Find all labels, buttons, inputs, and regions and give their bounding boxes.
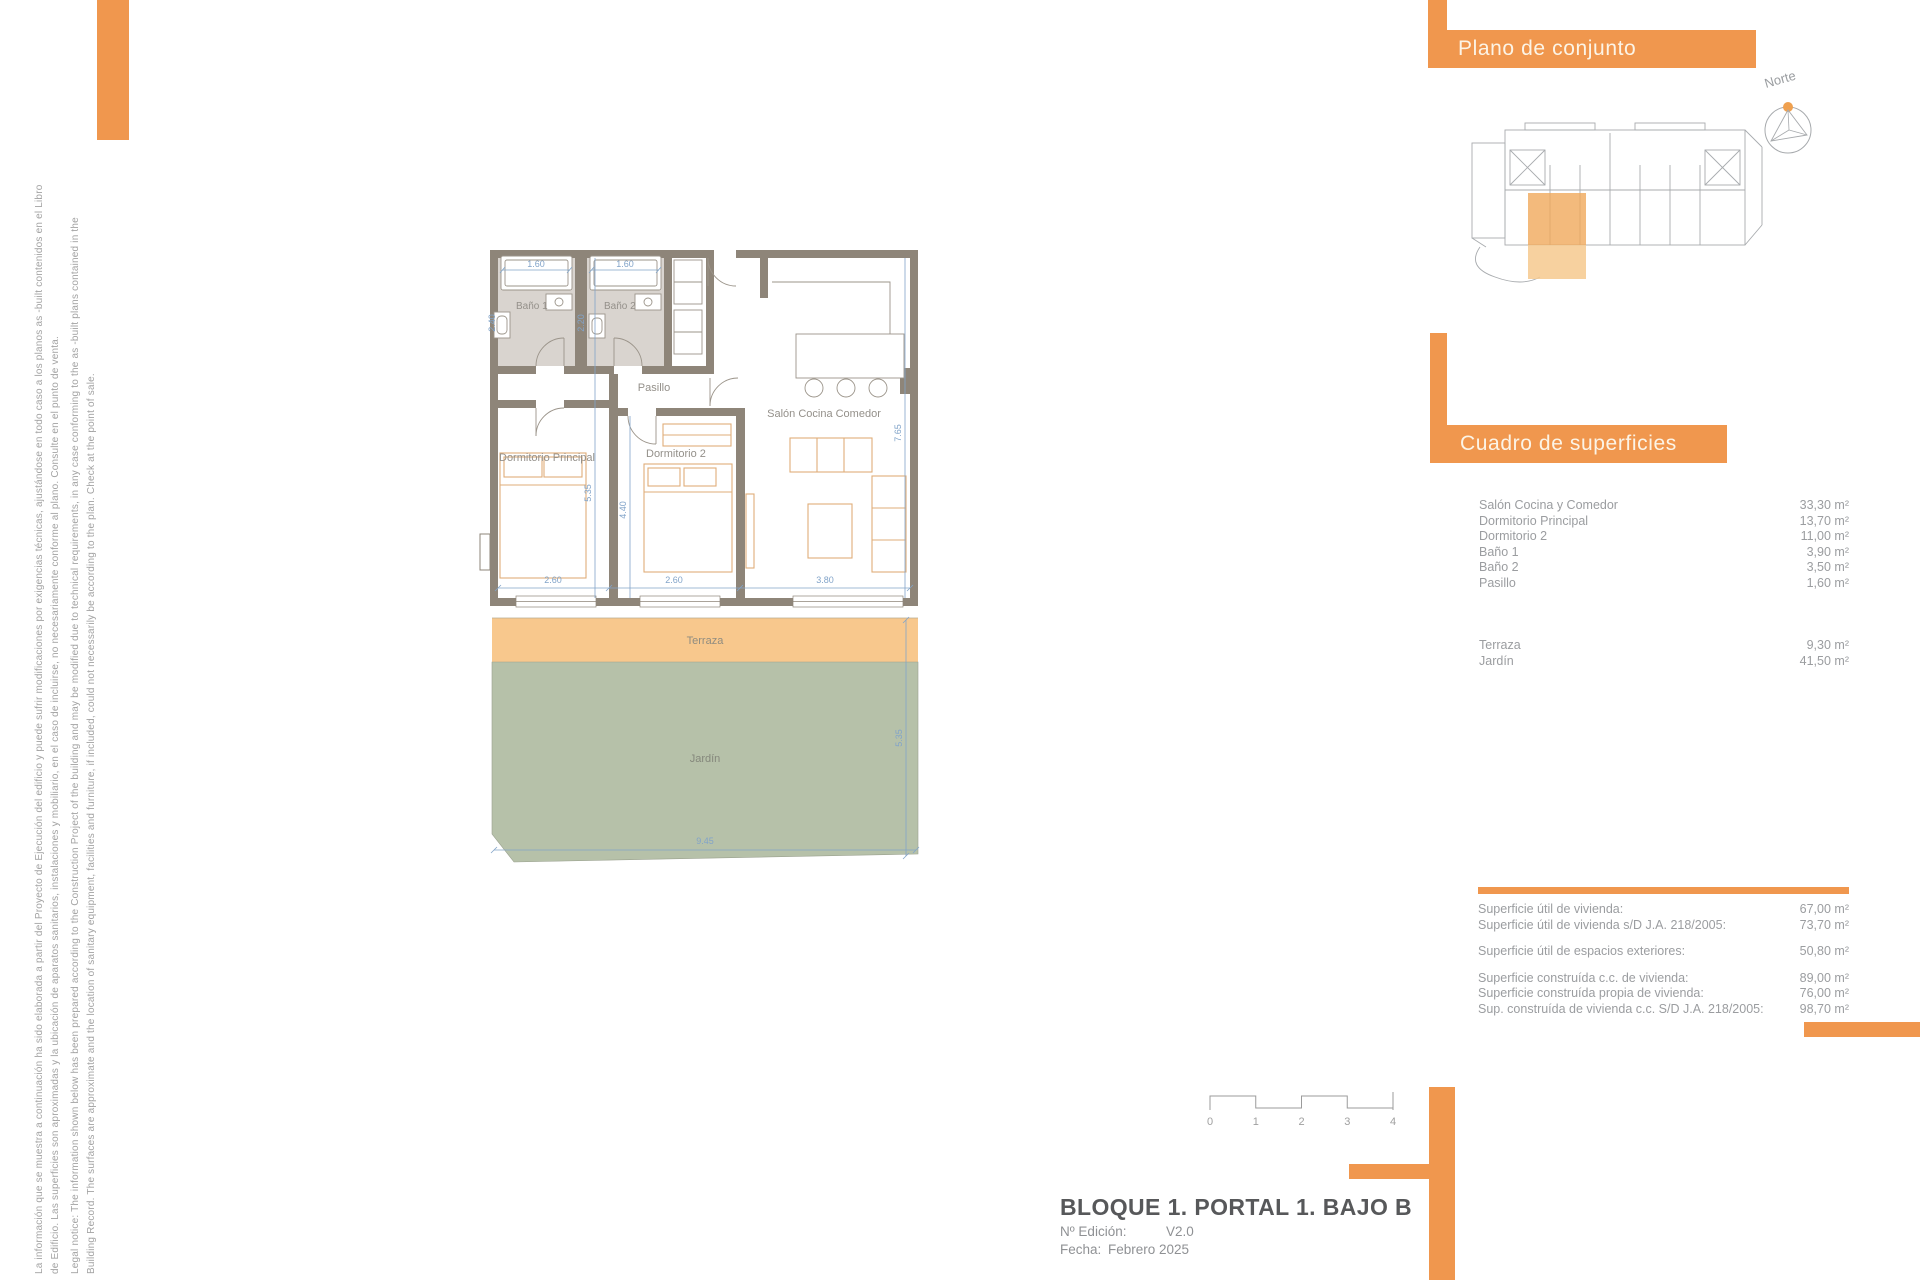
edition-row: Nº Edición: V2.0 — [1060, 1224, 1412, 1239]
summary-row: Superficie útil de vivienda s/D J.A. 218… — [1478, 918, 1849, 934]
legal-text-en-line2: Building Record. The surfaces are approx… — [86, 8, 102, 1274]
summary-row: Superficie construída c.c. de vivienda:8… — [1478, 971, 1849, 987]
dim-dp-height: 5.35 — [583, 484, 593, 502]
summary-row: Superficie útil de vivienda:67,00 m² — [1478, 902, 1849, 918]
site-plan-title: Plano de conjunto — [1458, 37, 1636, 61]
dim-dp-width: 2.60 — [544, 575, 562, 585]
label-salon: Salón Cocina Comedor — [767, 408, 881, 420]
label-terraza: Terraza — [687, 635, 725, 647]
label-dorm2: Dormitorio 2 — [646, 448, 706, 460]
summary-label: Superficie construída propia de vivienda… — [1478, 986, 1704, 1002]
surfaces-title: Cuadro de superficies — [1460, 432, 1677, 456]
summary-block: Superficie útil de vivienda:67,00 m² Sup… — [1478, 887, 1849, 1028]
svg-text:1: 1 — [1253, 1116, 1259, 1128]
highlighted-garden — [1528, 245, 1586, 279]
row-value: 11,00 m² — [1801, 529, 1849, 545]
stool-icon — [805, 379, 823, 397]
summary-group: Superficie construída c.c. de vivienda:8… — [1478, 971, 1849, 1018]
north-label: Norte — [1763, 68, 1798, 91]
exterior-pillar — [480, 534, 490, 570]
stool-icon — [837, 379, 855, 397]
dim-d2-height: 4.40 — [618, 501, 628, 519]
dim-garden-width: 9.45 — [696, 836, 714, 846]
svg-text:2: 2 — [1298, 1116, 1304, 1128]
windows — [516, 596, 903, 607]
kitchen-island — [796, 334, 904, 378]
table-row: Dormitorio 211,00 m² — [1479, 529, 1849, 545]
summary-value: 73,70 m² — [1800, 918, 1849, 934]
corner-accent-bar — [97, 0, 129, 140]
stool-icon — [869, 379, 887, 397]
scale-labels: 0 1 2 3 4 — [1207, 1116, 1396, 1128]
row-label: Pasillo — [1479, 576, 1516, 592]
row-value: 3,90 m² — [1807, 545, 1849, 561]
summary-row: Superficie útil de espacios exteriores:5… — [1478, 944, 1849, 960]
row-label: Jardín — [1479, 654, 1514, 670]
site-plan-header-tab — [1428, 0, 1447, 34]
dim-exterior-height: 5.35 — [894, 729, 904, 747]
surfaces-header-tab — [1430, 333, 1447, 427]
summary-group: Superficie útil de espacios exteriores:5… — [1478, 944, 1849, 960]
accent-bar-vertical — [1429, 1087, 1455, 1280]
row-label: Baño 1 — [1479, 545, 1519, 561]
kitchen — [772, 282, 904, 397]
date-label: Fecha: — [1060, 1242, 1108, 1257]
summary-label: Superficie útil de vivienda: — [1478, 902, 1623, 918]
summary-value: 50,80 m² — [1800, 944, 1849, 960]
dim-bath2-depth: 2.20 — [576, 314, 586, 332]
site-plan-header: Plano de conjunto — [1428, 30, 1756, 68]
svg-text:4: 4 — [1390, 1116, 1396, 1128]
north-arrow: Norte — [1738, 58, 1838, 168]
row-label: Dormitorio Principal — [1479, 514, 1588, 530]
label-jardin: Jardín — [690, 753, 721, 765]
surfaces-table-outdoor: Terraza9,30 m² Jardín41,50 m² — [1479, 638, 1849, 669]
edition-label: Nº Edición: — [1060, 1224, 1166, 1239]
legal-text-es-line2: de Edificio. Las superficies son aproxim… — [50, 8, 66, 1274]
label-bano1: Baño 1 — [516, 301, 548, 312]
edition-value: V2.0 — [1166, 1224, 1194, 1239]
row-label: Terraza — [1479, 638, 1521, 654]
legal-text-es-line1: La información que se muestra a continua… — [34, 8, 50, 1274]
row-value: 41,50 m² — [1800, 654, 1849, 670]
label-pasillo: Pasillo — [638, 382, 670, 394]
svg-text:0: 0 — [1207, 1116, 1213, 1128]
summary-value: 98,70 m² — [1800, 1002, 1849, 1018]
row-label: Baño 2 — [1479, 560, 1519, 576]
legal-text-en-line1: Legal notice: The information shown belo… — [70, 8, 86, 1274]
row-value: 13,70 m² — [1800, 514, 1849, 530]
accent-bar-horizontal — [1349, 1164, 1429, 1179]
label-bano2: Baño 2 — [604, 301, 636, 312]
summary-row: Sup. construída de vivienda c.c. S/D J.A… — [1478, 1002, 1849, 1018]
summary-label: Superficie construída c.c. de vivienda: — [1478, 971, 1689, 987]
sheet-title: BLOQUE 1. PORTAL 1. BAJO B — [1060, 1194, 1412, 1221]
row-value: 3,50 m² — [1807, 560, 1849, 576]
summary-value: 76,00 m² — [1800, 986, 1849, 1002]
summary-value: 67,00 m² — [1800, 902, 1849, 918]
table-row: Jardín41,50 m² — [1479, 654, 1849, 670]
summary-label: Sup. construída de vivienda c.c. S/D J.A… — [1478, 1002, 1764, 1018]
summary-value: 89,00 m² — [1800, 971, 1849, 987]
surfaces-header: Cuadro de superficies — [1430, 425, 1727, 463]
dim-shower1: 1.60 — [527, 259, 545, 269]
row-value: 33,30 m² — [1800, 498, 1849, 514]
dim-shower2: 1.60 — [616, 259, 634, 269]
surfaces-table: Salón Cocina y Comedor33,30 m² Dormitori… — [1479, 498, 1849, 591]
title-block: BLOQUE 1. PORTAL 1. BAJO B Nº Edición: V… — [1060, 1194, 1412, 1257]
dim-bath1-depth: 2.40 — [487, 314, 497, 332]
plan-sheet: { "brand": { "orange": "#f0974e", "terra… — [0, 0, 1920, 1280]
summary-label: Superficie útil de espacios exteriores: — [1478, 944, 1685, 960]
dim-salon-width: 3.80 — [816, 575, 834, 585]
label-dorm-principal: Dormitorio Principal — [499, 452, 595, 464]
row-label: Salón Cocina y Comedor — [1479, 498, 1618, 514]
table-row: Pasillo1,60 m² — [1479, 576, 1849, 592]
svg-text:3: 3 — [1344, 1116, 1350, 1128]
row-value: 1,60 m² — [1807, 576, 1849, 592]
date-value: Febrero 2025 — [1108, 1242, 1189, 1257]
table-row: Terraza9,30 m² — [1479, 638, 1849, 654]
highlighted-unit — [1528, 193, 1586, 245]
scale-bar: 0 1 2 3 4 — [1205, 1088, 1405, 1133]
summary-bottom-bar — [1804, 1022, 1920, 1037]
table-row: Baño 23,50 m² — [1479, 560, 1849, 576]
table-row: Dormitorio Principal13,70 m² — [1479, 514, 1849, 530]
row-value: 9,30 m² — [1807, 638, 1849, 654]
table-row: Baño 13,90 m² — [1479, 545, 1849, 561]
dim-d2-width: 2.60 — [665, 575, 683, 585]
summary-top-bar — [1478, 887, 1849, 894]
table-row: Salón Cocina y Comedor33,30 m² — [1479, 498, 1849, 514]
dim-salon-height: 7.65 — [893, 424, 903, 442]
date-row: Fecha: Febrero 2025 — [1060, 1242, 1412, 1257]
summary-label: Superficie útil de vivienda s/D J.A. 218… — [1478, 918, 1726, 934]
summary-row: Superficie construída propia de vivienda… — [1478, 986, 1849, 1002]
floor-plan: 1.60 1.60 2.40 2.20 5.35 4.40 7.65 2.60 … — [478, 238, 928, 878]
summary-group: Superficie útil de vivienda:67,00 m² Sup… — [1478, 902, 1849, 933]
row-label: Dormitorio 2 — [1479, 529, 1547, 545]
